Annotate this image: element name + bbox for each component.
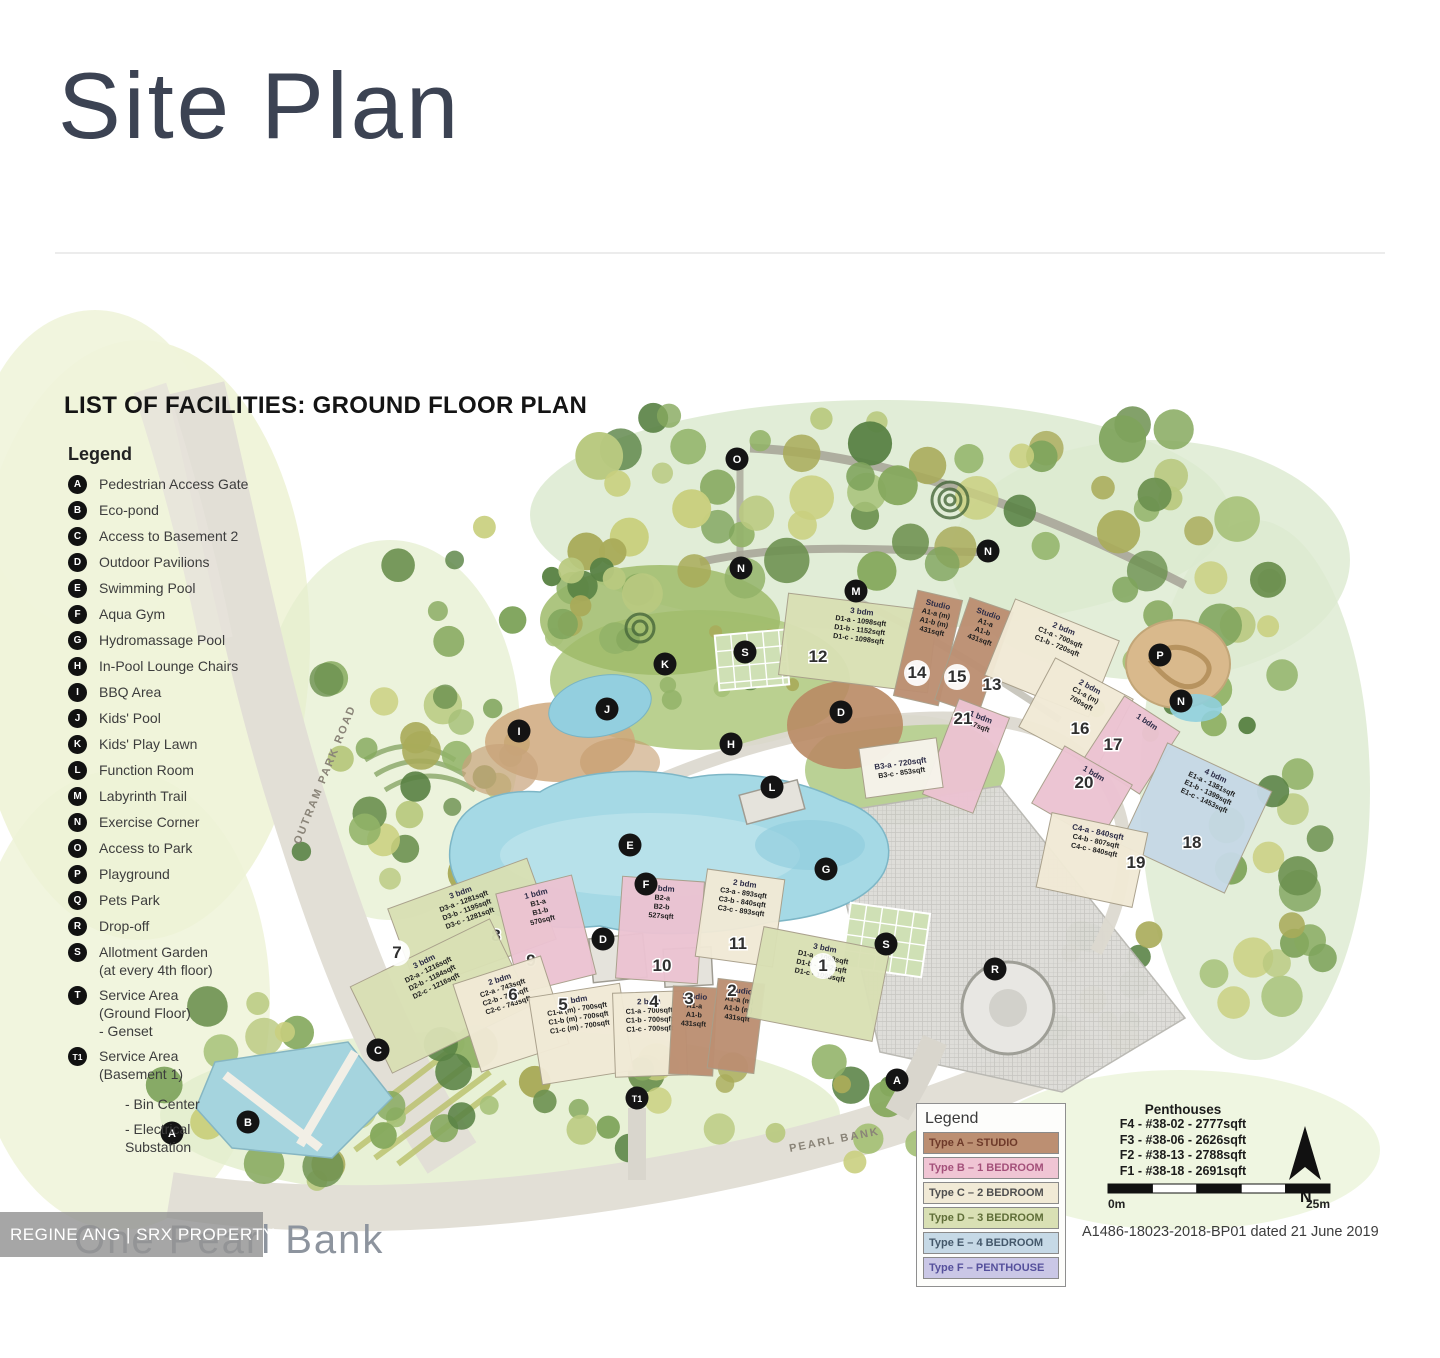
tree bbox=[1214, 496, 1260, 542]
tree bbox=[1138, 478, 1172, 512]
tree bbox=[356, 738, 378, 760]
scale-bar-segment bbox=[1108, 1184, 1152, 1193]
tree bbox=[810, 408, 832, 430]
facilities-legend-notes: - Bin Center- Electrical Substation bbox=[68, 1095, 298, 1156]
map-marker-label: A bbox=[893, 1075, 901, 1087]
tree bbox=[1261, 976, 1302, 1017]
legend-item-A: APedestrian Access Gate bbox=[68, 475, 298, 494]
tree bbox=[645, 1087, 672, 1114]
tree bbox=[381, 548, 415, 582]
legend-badge-T1: T1 bbox=[68, 1047, 87, 1066]
scale-bar-segment bbox=[1152, 1184, 1196, 1193]
legend-badge-G: G bbox=[68, 631, 87, 650]
facilities-legend-title: Legend bbox=[68, 444, 298, 465]
legend-label: Access to Park bbox=[99, 839, 192, 857]
tree bbox=[783, 435, 821, 473]
legend-item-H: HIn-Pool Lounge Chairs bbox=[68, 657, 298, 676]
legend-badge-A: A bbox=[68, 475, 87, 494]
penthouse-row: F1 - #38-18 - 2691sqft bbox=[1093, 1164, 1273, 1180]
map-marker-label: N bbox=[1177, 696, 1185, 708]
tree bbox=[1097, 510, 1140, 553]
legend-label: Playground bbox=[99, 865, 170, 883]
legend-item-J: JKids' Pool bbox=[68, 709, 298, 728]
tree bbox=[480, 1096, 499, 1115]
tree bbox=[1009, 444, 1034, 469]
tree bbox=[396, 801, 424, 829]
legend-item-N: NExercise Corner bbox=[68, 813, 298, 832]
legend-item-P: PPlayground bbox=[68, 865, 298, 884]
penthouse-row: F2 - #38-13 - 2788sqft bbox=[1093, 1148, 1273, 1164]
tree bbox=[433, 685, 457, 709]
legend-label: Swimming Pool bbox=[99, 579, 195, 597]
map-marker-label: F bbox=[643, 879, 650, 891]
tree bbox=[1200, 959, 1229, 988]
legend-badge-H: H bbox=[68, 657, 87, 676]
tree bbox=[1308, 944, 1336, 972]
penthouse-row: F4 - #38-02 - 2777sqft bbox=[1093, 1117, 1273, 1133]
tree bbox=[448, 709, 474, 735]
scale-bar-segment bbox=[1286, 1184, 1330, 1193]
penthouse-list-title: Penthouses bbox=[1093, 1102, 1273, 1117]
tree bbox=[1194, 561, 1227, 594]
legend-badge-R: R bbox=[68, 917, 87, 936]
building-number: 18 bbox=[1183, 833, 1202, 852]
legend-item-B: BEco-pond bbox=[68, 501, 298, 520]
map-marker-label: G bbox=[822, 864, 831, 876]
legend-label: BBQ Area bbox=[99, 683, 161, 701]
building-number: 6 bbox=[508, 985, 517, 1004]
legend-label: Aqua Gym bbox=[99, 605, 165, 623]
legend-item-E: ESwimming Pool bbox=[68, 579, 298, 598]
tree bbox=[349, 814, 381, 846]
legend-label: Outdoor Pavilions bbox=[99, 553, 210, 571]
map-marker-label: T1 bbox=[632, 1094, 643, 1104]
map-marker-label: J bbox=[604, 704, 610, 716]
legend-item-Q: QPets Park bbox=[68, 891, 298, 910]
tree bbox=[652, 463, 673, 484]
legend-badge-Q: Q bbox=[68, 891, 87, 910]
tree bbox=[616, 628, 640, 652]
map-marker-label: C bbox=[374, 1045, 382, 1057]
tree bbox=[892, 524, 929, 561]
legend-badge-D: D bbox=[68, 553, 87, 572]
legend-label: Hydromassage Pool bbox=[99, 631, 225, 649]
legend-label: In-Pool Lounge Chairs bbox=[99, 657, 238, 675]
map-marker-label: H bbox=[727, 739, 735, 751]
tree bbox=[473, 516, 496, 539]
building-number: 16 bbox=[1071, 719, 1090, 738]
map-marker-label: R bbox=[991, 964, 999, 976]
unit-type-row: Type C – 2 BEDROOM bbox=[923, 1182, 1059, 1204]
legend-badge-N: N bbox=[68, 813, 87, 832]
tree bbox=[570, 595, 591, 616]
tree bbox=[1266, 659, 1298, 691]
unit-type-legend-title: Legend bbox=[925, 1110, 1059, 1128]
unit-type-legend: Legend Type A – STUDIOType B – 1 BEDROOM… bbox=[916, 1103, 1066, 1287]
legend-item-K: KKids' Play Lawn bbox=[68, 735, 298, 754]
map-marker-label: M bbox=[851, 586, 860, 598]
map-marker-label: N bbox=[984, 546, 992, 558]
legend-label: Pedestrian Access Gate bbox=[99, 475, 248, 493]
tree bbox=[1279, 912, 1305, 938]
legend-label: Service Area (Basement 1) bbox=[99, 1047, 183, 1083]
building-text: C1-c - 700sqft bbox=[626, 1023, 674, 1034]
bbq-terrace bbox=[462, 744, 538, 796]
building-number: 17 bbox=[1104, 735, 1123, 754]
tree bbox=[604, 470, 630, 496]
tree bbox=[1307, 825, 1334, 852]
tree bbox=[812, 1044, 847, 1079]
unit-type-legend-rows: Type A – STUDIOType B – 1 BEDROOMType C … bbox=[923, 1132, 1059, 1279]
map-marker-label: D bbox=[837, 707, 845, 719]
legend-badge-K: K bbox=[68, 735, 87, 754]
legend-note: - Electrical Substation bbox=[125, 1120, 298, 1156]
tree bbox=[716, 1074, 735, 1093]
legend-label: Eco-pond bbox=[99, 501, 159, 519]
tree bbox=[567, 1115, 597, 1145]
penthouse-list: Penthouses F4 - #38-02 - 2777sqftF3 - #3… bbox=[1093, 1102, 1273, 1179]
building-number: 1 bbox=[818, 956, 827, 975]
unit-type-row: Type D – 3 BEDROOM bbox=[923, 1207, 1059, 1229]
legend-badge-J: J bbox=[68, 709, 87, 728]
tree bbox=[499, 606, 527, 634]
building-text: 527sqft bbox=[648, 910, 674, 921]
tree bbox=[833, 1075, 851, 1093]
legend-label: Function Room bbox=[99, 761, 194, 779]
unit-type-row: Type E – 4 BEDROOM bbox=[923, 1232, 1059, 1254]
tree bbox=[1136, 921, 1163, 948]
tree bbox=[433, 626, 464, 657]
building-number: 3 bbox=[684, 989, 693, 1008]
legend-label: Kids' Play Lawn bbox=[99, 735, 197, 753]
tree bbox=[310, 663, 344, 697]
legend-item-O: OAccess to Park bbox=[68, 839, 298, 858]
drop-off-island bbox=[989, 989, 1027, 1027]
tree bbox=[400, 722, 431, 753]
scale-bar-segment bbox=[1197, 1184, 1241, 1193]
tree bbox=[657, 404, 681, 428]
tree bbox=[1032, 532, 1060, 560]
scale-bar-segment bbox=[1241, 1184, 1285, 1193]
tree bbox=[954, 444, 983, 473]
tree bbox=[445, 551, 464, 570]
map-marker-label: L bbox=[769, 782, 776, 794]
tree bbox=[597, 1116, 620, 1139]
tree bbox=[750, 430, 771, 451]
tree bbox=[483, 699, 502, 718]
legend-badge-I: I bbox=[68, 683, 87, 702]
tree bbox=[558, 558, 584, 584]
tree bbox=[662, 690, 682, 710]
tree bbox=[379, 868, 401, 890]
tree bbox=[846, 462, 875, 491]
building-number: 5 bbox=[558, 995, 567, 1014]
building-number: 13 bbox=[983, 675, 1002, 694]
building-number: 15 bbox=[948, 667, 967, 686]
map-marker-label: K bbox=[661, 659, 669, 671]
tree bbox=[677, 554, 711, 588]
map-marker-label: P bbox=[1156, 650, 1163, 662]
legend-label: Access to Basement 2 bbox=[99, 527, 238, 545]
watermark-band: REGINE ANG | SRX PROPERTY bbox=[0, 1212, 263, 1257]
building-number: 19 bbox=[1127, 853, 1146, 872]
legend-item-L: LFunction Room bbox=[68, 761, 298, 780]
watermark-text: REGINE ANG | SRX PROPERTY bbox=[0, 1225, 275, 1245]
facilities-heading: LIST OF FACILITIES: GROUND FLOOR PLAN bbox=[64, 392, 587, 420]
tree bbox=[1099, 415, 1146, 462]
legend-item-R: RDrop-off bbox=[68, 917, 298, 936]
tree bbox=[448, 1102, 476, 1130]
map-marker-label: S bbox=[741, 647, 748, 659]
tree bbox=[739, 496, 774, 531]
tree bbox=[1217, 986, 1250, 1019]
legend-item-I: IBBQ Area bbox=[68, 683, 298, 702]
legend-badge-B: B bbox=[68, 501, 87, 520]
tree bbox=[878, 465, 918, 505]
tree bbox=[533, 1090, 557, 1114]
building-number: 4 bbox=[649, 992, 659, 1011]
legend-badge-F: F bbox=[68, 605, 87, 624]
building-number: 7 bbox=[392, 943, 401, 962]
tree bbox=[925, 547, 960, 582]
tree bbox=[370, 1122, 397, 1149]
map-marker-label: O bbox=[733, 454, 742, 466]
tree bbox=[622, 573, 663, 614]
building-number: 10 bbox=[653, 956, 672, 975]
tree bbox=[1154, 409, 1194, 449]
tree bbox=[400, 771, 430, 801]
tree bbox=[704, 1113, 735, 1144]
tree bbox=[670, 429, 706, 465]
legend-item-M: MLabyrinth Trail bbox=[68, 787, 298, 806]
tree bbox=[1091, 476, 1115, 500]
legend-item-D: DOutdoor Pavilions bbox=[68, 553, 298, 572]
tree bbox=[1112, 577, 1138, 603]
facilities-legend: Legend APedestrian Access GateBEco-pondC… bbox=[68, 444, 298, 1163]
building-number: 21 bbox=[954, 709, 973, 728]
tree bbox=[789, 475, 834, 520]
unit-type-row: Type F – PENTHOUSE bbox=[923, 1257, 1059, 1279]
unit-type-row: Type B – 1 BEDROOM bbox=[923, 1157, 1059, 1179]
tree bbox=[672, 489, 711, 528]
tree bbox=[764, 538, 809, 583]
map-marker-label: E bbox=[626, 840, 633, 852]
legend-badge-T: T bbox=[68, 986, 87, 1005]
legend-label: Pets Park bbox=[99, 891, 160, 909]
legend-badge-E: E bbox=[68, 579, 87, 598]
facilities-legend-items: APedestrian Access GateBEco-pondCAccess … bbox=[68, 475, 298, 1083]
scale-label-left: 0m bbox=[1108, 1197, 1125, 1211]
legend-badge-M: M bbox=[68, 787, 87, 806]
legend-label: Kids' Pool bbox=[99, 709, 161, 727]
building-text: 431sqft bbox=[681, 1018, 707, 1028]
map-marker-label: S bbox=[882, 939, 889, 951]
tree bbox=[603, 567, 626, 590]
scale-label-right: 25m bbox=[1306, 1197, 1330, 1211]
penthouse-row: F3 - #38-06 - 2626sqft bbox=[1093, 1133, 1273, 1149]
building-number: 11 bbox=[729, 934, 747, 953]
tree bbox=[1184, 516, 1213, 545]
legend-item-C: CAccess to Basement 2 bbox=[68, 527, 298, 546]
page: Site Plan 3 bdmD1-a - 1098sqftD1-b - 115… bbox=[0, 0, 1440, 1358]
tree bbox=[1250, 562, 1286, 598]
drawing-reference: A1486-18023-2018-BP01 dated 21 June 2019 bbox=[1082, 1224, 1379, 1240]
tree bbox=[443, 798, 461, 816]
unit-label-tag: B3-a - 720sqftB3-c - 853sqft bbox=[859, 738, 943, 798]
tree bbox=[370, 687, 398, 715]
legend-item-T: TService Area (Ground Floor) - Genset bbox=[68, 986, 298, 1040]
tree bbox=[1238, 717, 1255, 734]
building-number: 2 bbox=[727, 981, 736, 1000]
tree bbox=[843, 1151, 866, 1174]
map-marker-label: I bbox=[517, 726, 520, 738]
legend-badge-S: S bbox=[68, 943, 87, 962]
legend-label: Service Area (Ground Floor) - Genset bbox=[99, 986, 191, 1040]
legend-label: Exercise Corner bbox=[99, 813, 199, 831]
legend-label: Drop-off bbox=[99, 917, 149, 935]
unit-type-row: Type A – STUDIO bbox=[923, 1132, 1059, 1154]
legend-item-F: FAqua Gym bbox=[68, 605, 298, 624]
tree bbox=[848, 421, 892, 465]
legend-item-T1: T1Service Area (Basement 1) bbox=[68, 1047, 298, 1083]
legend-badge-O: O bbox=[68, 839, 87, 858]
tree bbox=[1004, 495, 1036, 527]
legend-badge-C: C bbox=[68, 527, 87, 546]
legend-label: Allotment Garden (at every 4th floor) bbox=[99, 943, 213, 979]
penthouse-rows: F4 - #38-02 - 2777sqftF3 - #38-06 - 2626… bbox=[1093, 1117, 1273, 1179]
legend-badge-L: L bbox=[68, 761, 87, 780]
map-marker-label: D bbox=[599, 934, 607, 946]
building-number: 20 bbox=[1075, 773, 1094, 792]
map-marker-label: N bbox=[737, 563, 745, 575]
tree bbox=[1257, 615, 1279, 637]
legend-item-S: SAllotment Garden (at every 4th floor) bbox=[68, 943, 298, 979]
tree bbox=[766, 1123, 786, 1143]
building-number: 12 bbox=[809, 647, 828, 666]
building-number: 14 bbox=[908, 663, 927, 682]
legend-badge-P: P bbox=[68, 865, 87, 884]
tree bbox=[428, 601, 448, 621]
pool-shade bbox=[755, 820, 865, 870]
legend-note: - Bin Center bbox=[125, 1095, 298, 1113]
legend-item-G: GHydromassage Pool bbox=[68, 631, 298, 650]
legend-label: Labyrinth Trail bbox=[99, 787, 187, 805]
tree bbox=[1278, 856, 1317, 895]
